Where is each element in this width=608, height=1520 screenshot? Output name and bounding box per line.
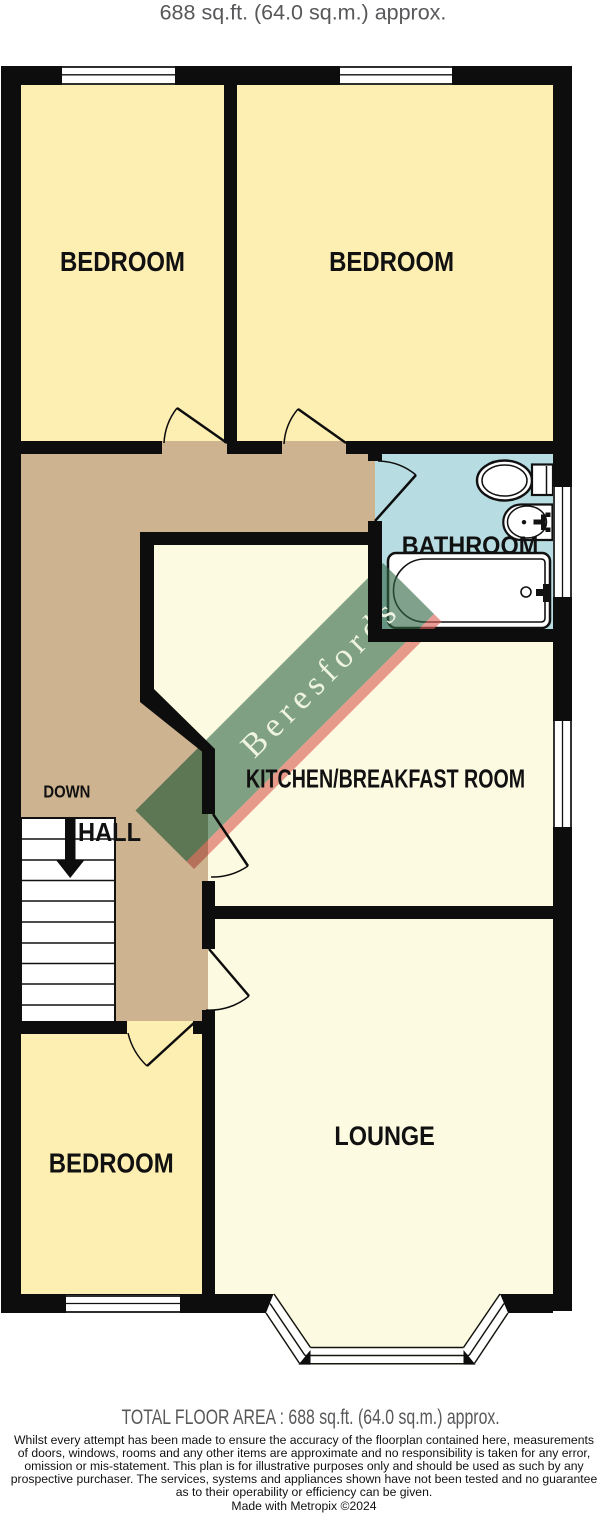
svg-text:of doors, windows, rooms and a: of doors, windows, rooms and any other i… bbox=[18, 1446, 590, 1460]
svg-text:688 sq.ft. (64.0 sq.m.) approx: 688 sq.ft. (64.0 sq.m.) approx. bbox=[160, 1, 447, 25]
svg-text:as to their operability or eff: as to their operability or efficiency ca… bbox=[176, 1485, 433, 1499]
svg-text:LOUNGE: LOUNGE bbox=[334, 1122, 434, 1152]
svg-text:DOWN: DOWN bbox=[43, 782, 90, 802]
svg-text:BEDROOM: BEDROOM bbox=[60, 245, 185, 277]
svg-text:prospective purchaser. The ser: prospective purchaser. The services, sys… bbox=[11, 1472, 598, 1486]
svg-text:BEDROOM: BEDROOM bbox=[329, 245, 454, 277]
svg-text:Made with Metropix ©2024: Made with Metropix ©2024 bbox=[231, 1499, 376, 1513]
svg-text:omission or mis-statement. Thi: omission or mis-statement. This plan is … bbox=[24, 1459, 584, 1473]
svg-text:BEDROOM: BEDROOM bbox=[49, 1147, 174, 1179]
svg-text:HALL: HALL bbox=[78, 819, 141, 847]
svg-text:KITCHEN/BREAKFAST ROOM: KITCHEN/BREAKFAST ROOM bbox=[246, 764, 525, 793]
svg-text:TOTAL FLOOR AREA : 688 sq.ft.: TOTAL FLOOR AREA : 688 sq.ft. (64.0 sq.m… bbox=[122, 1406, 500, 1430]
svg-text:BATHROOM: BATHROOM bbox=[402, 532, 539, 560]
svg-text:Whilst every attempt has been: Whilst every attempt has been made to en… bbox=[14, 1433, 594, 1447]
